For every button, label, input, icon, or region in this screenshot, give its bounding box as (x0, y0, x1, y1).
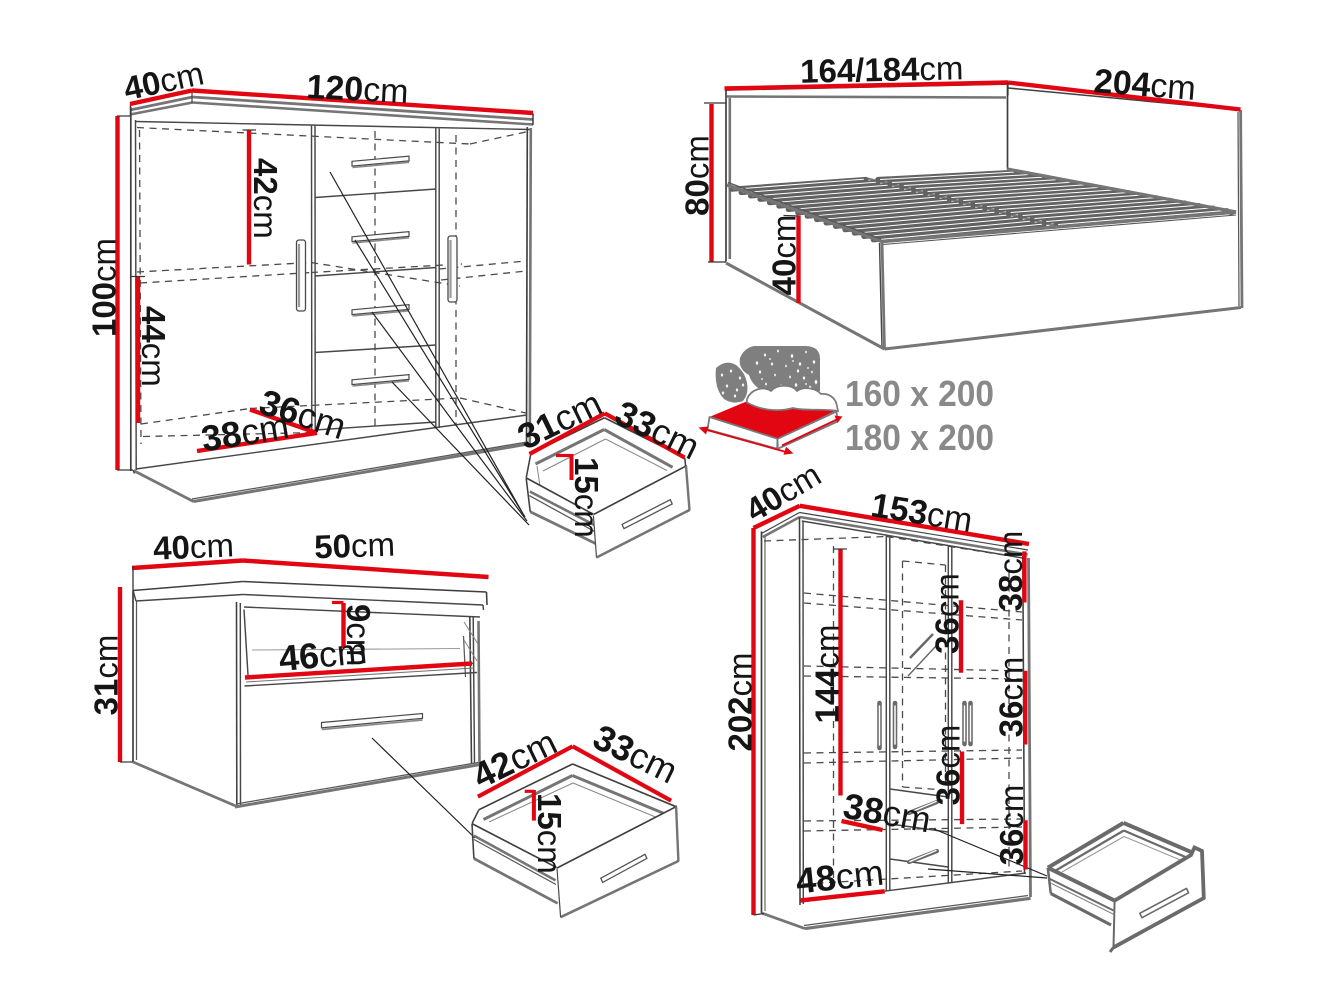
svg-text:31cm: 31cm (88, 635, 125, 716)
svg-text:36cm: 36cm (993, 785, 1030, 866)
svg-text:38cm: 38cm (992, 531, 1029, 612)
svg-text:202cm: 202cm (722, 652, 759, 751)
svg-text:160 x 200: 160 x 200 (845, 373, 994, 414)
svg-text:144cm: 144cm (809, 624, 846, 723)
svg-text:36cm: 36cm (929, 573, 966, 654)
svg-text:120cm: 120cm (306, 68, 410, 111)
svg-text:40cm: 40cm (152, 526, 234, 566)
svg-text:80cm: 80cm (679, 135, 716, 216)
svg-text:40cm: 40cm (766, 215, 803, 296)
svg-text:42cm: 42cm (247, 158, 284, 239)
svg-text:15cm: 15cm (568, 457, 605, 538)
svg-text:15cm: 15cm (531, 793, 568, 874)
svg-text:50cm: 50cm (314, 526, 396, 566)
svg-text:46cm: 46cm (277, 630, 369, 679)
svg-text:36cm: 36cm (930, 725, 967, 806)
svg-text:36cm: 36cm (993, 657, 1030, 738)
svg-text:180 x 200: 180 x 200 (845, 417, 994, 458)
svg-text:44cm: 44cm (135, 306, 172, 387)
svg-text:100cm: 100cm (86, 238, 123, 337)
svg-text:204cm: 204cm (1093, 62, 1198, 108)
svg-text:164/184cm: 164/184cm (800, 49, 964, 89)
